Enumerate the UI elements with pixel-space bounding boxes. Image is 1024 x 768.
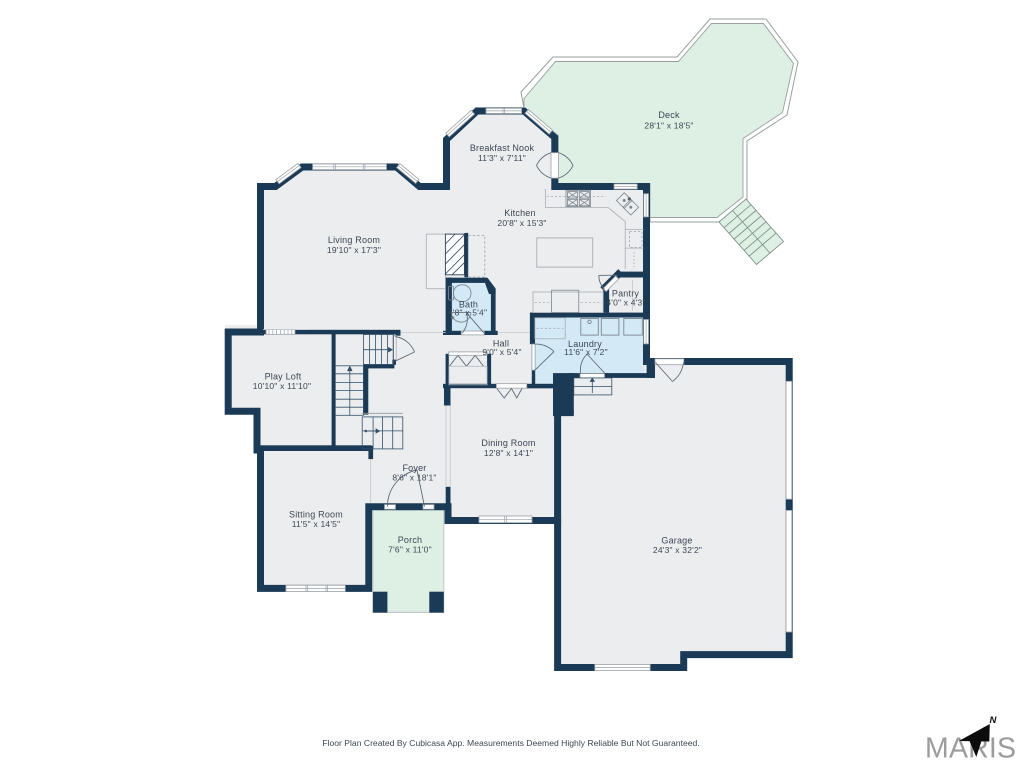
- svg-text:4'0" x 4'3": 4'0" x 4'3": [606, 298, 645, 308]
- svg-text:Breakfast Nook: Breakfast Nook: [470, 143, 535, 153]
- svg-text:Porch: Porch: [398, 535, 423, 545]
- svg-text:Living Room: Living Room: [328, 235, 380, 245]
- svg-text:12'8" x 14'1": 12'8" x 14'1": [484, 448, 533, 458]
- svg-text:10'10" x 11'10": 10'10" x 11'10": [253, 381, 311, 391]
- svg-text:Kitchen: Kitchen: [504, 208, 535, 218]
- svg-text:7'6" x 11'0": 7'6" x 11'0": [388, 545, 432, 555]
- svg-text:11'5" x 14'5": 11'5" x 14'5": [292, 519, 341, 529]
- svg-text:N: N: [990, 715, 998, 726]
- svg-text:Foyer: Foyer: [402, 463, 426, 473]
- svg-text:Sitting Room: Sitting Room: [289, 510, 343, 520]
- svg-text:8'6" x 18'1": 8'6" x 18'1": [392, 473, 436, 483]
- svg-text:Garage: Garage: [661, 536, 692, 546]
- svg-text:28'1" x 18'5": 28'1" x 18'5": [644, 121, 693, 131]
- svg-text:Dining Room: Dining Room: [481, 438, 535, 448]
- svg-text:4'8" x 5'4": 4'8" x 5'4": [448, 308, 487, 318]
- svg-text:9'0" x 5'4": 9'0" x 5'4": [482, 347, 521, 357]
- svg-text:Play Loft: Play Loft: [265, 372, 302, 382]
- svg-text:11'6" x 7'2": 11'6" x 7'2": [564, 347, 608, 357]
- svg-text:Deck: Deck: [658, 110, 680, 120]
- svg-text:Floor Plan Created By Cubicasa: Floor Plan Created By Cubicasa App. Meas…: [322, 738, 699, 748]
- svg-text:20'8" x 15'3": 20'8" x 15'3": [497, 218, 546, 228]
- svg-text:11'3" x 7'11": 11'3" x 7'11": [478, 153, 526, 163]
- svg-text:19'10" x 17'3": 19'10" x 17'3": [327, 245, 381, 255]
- svg-text:24'3" x 32'2": 24'3" x 32'2": [653, 545, 702, 555]
